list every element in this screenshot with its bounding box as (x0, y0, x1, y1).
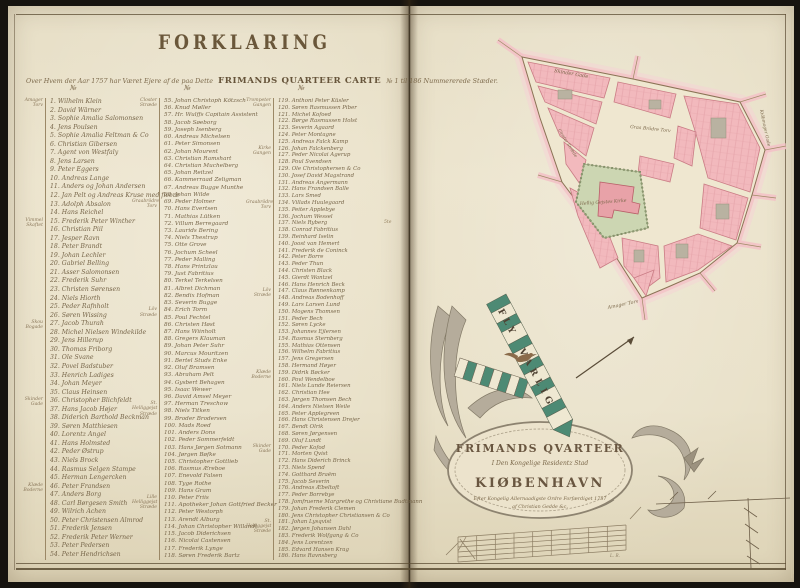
street-group-label: Graabrödre Torv (132, 199, 159, 209)
legend-entry: 149. Lars Larsen Lund (278, 302, 422, 309)
legend-entry: 180. Jens Christopher Christiansen & Co (278, 513, 422, 520)
legend-entry: 157. Jens Gregersen (278, 356, 422, 363)
legend-entry: 172. Hans Diderich Brinck (278, 458, 422, 465)
street-group-label: Amager Torv (18, 98, 45, 108)
legend-entry: 125. Andreas Falck Kamp (278, 139, 422, 146)
legend-entry: 151. Peder Bech (278, 316, 422, 323)
cartouche-city: KIØBENHAVN (475, 476, 605, 491)
street-group-label: Trompeter Gangen (246, 98, 273, 108)
column-number-header: № (70, 84, 77, 92)
legend-entry: 174. Gotthard Braëm (278, 472, 422, 479)
street-group-label: Graabrödre Torv (246, 200, 273, 210)
page-title: FORKLARING (40, 32, 370, 55)
street-group-label: Skinder Gade (18, 397, 45, 407)
legend-entry: 177. Peder Borrebye (278, 492, 422, 499)
legend-entry: 171. Morten Qvist (278, 451, 422, 458)
legend-entry: 128. Poul Svendsen (278, 159, 422, 166)
legend-entry: 184. Jens Lorentzen (278, 540, 422, 547)
legend-entry: 121. Michel Kofoed (278, 112, 422, 119)
spear-head (627, 337, 634, 345)
legend-entry: 168. Søren Jørgensen (278, 431, 422, 438)
legend-entry: 138. Conrad Fabritius (278, 227, 422, 234)
legend-entry: 135. Peiter Applebye (278, 207, 422, 214)
street-group-label: St. Helliggejst Stræde (246, 519, 273, 534)
legend-entry: 159. Didrik Bøcker (278, 370, 422, 377)
street-group-label: Skinder Gade (246, 444, 273, 454)
column-number-header: № (298, 84, 305, 92)
scale-mark: L. R. (609, 553, 620, 558)
legend-entry: 153. Johannes Ejlersen (278, 329, 422, 336)
legend-entry: 148. Andreas Bodenhoff (278, 295, 422, 302)
legend-entry: 179. Johan Frederik Clemen (278, 506, 422, 513)
street-group-label: Klæde Boderne (246, 370, 273, 380)
owner-entries: 119. Anthoni Peter Küsler120. Søren Rasm… (273, 98, 422, 560)
gutter-note: 5te (384, 220, 392, 225)
legend-entry: 185. Edvard Hansen Krag (278, 547, 422, 554)
legend-entry: 143. Peder Thun (278, 261, 422, 268)
legend-entry: 178. Jomfruerne Margrethe og Christiane … (278, 499, 422, 506)
street-label-amagertorv: Amager Torv (606, 299, 639, 312)
legend-entry: 144. Christen Black (278, 268, 422, 275)
legend-entry: 137. Niels Ryberg (278, 220, 422, 227)
street-group-label: Klæde Boderne (18, 483, 45, 493)
legend-entry: 127. Peder Nicolai Agerup (278, 152, 422, 159)
legend-entry: 141. Frederik de Coninck (278, 248, 422, 255)
legend-entry: 140. Joost van Hemert (278, 241, 422, 248)
legend-entry: 132. Hans Frandsen Balle (278, 186, 422, 193)
street-group-label: Löv Stræde (246, 288, 273, 298)
legend-column-3: № Trompeter GangenKirke GangenGraabrödre… (246, 84, 422, 560)
legend-entry: 119. Anthoni Peter Küsler (278, 98, 422, 105)
cartouche-credit-1: Efter Kongelig Allernaadigste Ordre Forf… (473, 496, 608, 502)
legend-entry: 164. Anders Nielsen Weile (278, 404, 422, 411)
legend-entry: 166. Hans Christensen Drejer (278, 417, 422, 424)
legend-entry: 150. Mogens Thomsen (278, 309, 422, 316)
legend-entry: 123. Severin Agaard (278, 125, 422, 132)
legend-entry: 122. Børge Rasmussen Holst (278, 118, 422, 125)
legend-entry: 154. Rasmus Sternberg (278, 336, 422, 343)
legend-entry: 155. Mathias Ottensen (278, 343, 422, 350)
legend-entry: 152. Søren Lycke (278, 322, 422, 329)
legend-entry: 131. Andreas Angermann (278, 180, 422, 187)
quarter-map-illustration: Skinder Gade Graa Brödre Torv Hellig Gej… (408, 6, 794, 582)
street-group-label: Kirke Gangen (246, 146, 273, 156)
cartouche: FRIMANDS QVARTEER I Den Kongelige Reside… (448, 422, 632, 518)
legend-entry: 120. Søren Rasmussen Piber (278, 105, 422, 112)
legend-entry: 183. Frederik Wolfgang & Co (278, 533, 422, 540)
legend-entry: 145. Gierdt Wantzel (278, 275, 422, 282)
legend-entry: 139. Reinhard Iselin (278, 234, 422, 241)
legend-entry: 173. Niels Spend (278, 465, 422, 472)
legend-entry: 182. Jørgen Johansen Dahl (278, 526, 422, 533)
legend-entry: 163. Jørgen Thomsen Bech (278, 397, 422, 404)
legend-entry: 147. Claus Rønnenkamp (278, 288, 422, 295)
legend-entry: 130. Josef David Magstrand (278, 173, 422, 180)
street-group-label: Closter Stræde (132, 98, 159, 108)
cartouche-spear (576, 337, 634, 378)
cartouche-title: FRIMANDS QVARTEER (456, 442, 625, 455)
legend-entry: 161. Niels Lunde Reiersen (278, 383, 422, 390)
street-group-label: St. Helliggejst Stræde (132, 401, 159, 416)
cartouche-credit-2: af Christian Gedde &c. (512, 504, 568, 510)
legend-entry: 176. Andreas Æbeltoft (278, 485, 422, 492)
legend-entry: 156. Wilhelm Fabritius (278, 349, 422, 356)
border-rule-left (14, 14, 15, 570)
legend-entry: 167. Bendt Olrik (278, 424, 422, 431)
street-group-label: Lille Helliggejst Stræde (132, 495, 159, 510)
street-group-label: Löv Stræde (132, 307, 159, 317)
legend-entry: 126. Johan Falckenberg (278, 146, 422, 153)
scanned-atlas-photo: FORKLARING Over Hvem der Aar 1757 har Væ… (0, 0, 800, 588)
legend-entry: 133. Lars Smed (278, 193, 422, 200)
legend-entry: 129. Ole Christophersen & Co (278, 166, 422, 173)
legend-entry: 181. Johan Lysqvist (278, 519, 422, 526)
legend-entry: 124. Peter Montagne (278, 132, 422, 139)
column-number-header: № (184, 84, 191, 92)
legend-entry: 136. Jochum Wessel (278, 214, 422, 221)
legend-entry: 186. Hans Ravnsberg (278, 553, 422, 560)
legend-entry: 165. Peter Applegreen (278, 411, 422, 418)
legend-entry: 169. Oluf Lundt (278, 438, 422, 445)
legend-entry: 175. Jacob Severin (278, 479, 422, 486)
legend-entry: 146. Hans Henrich Beck (278, 282, 422, 289)
legend-entry: 162. Christian Hee (278, 390, 422, 397)
legend-entry: 160. Povl Wendelboe (278, 377, 422, 384)
legend-entry: 142. Peter Borre (278, 254, 422, 261)
street-group-label: Skou Bogade (18, 320, 45, 330)
cartouche-subtitle: I Den Kongelige Residentz Stad (491, 460, 589, 467)
legend-entry: 134. Villads Huulegaard (278, 200, 422, 207)
legend-entry: 158. Hermand Høyer (278, 363, 422, 370)
motto-banner: FLY VARLIG (454, 294, 579, 442)
street-group-label: Vimmel Skaftet (18, 218, 45, 228)
legend-entry: 170. Peder Kofod (278, 445, 422, 452)
